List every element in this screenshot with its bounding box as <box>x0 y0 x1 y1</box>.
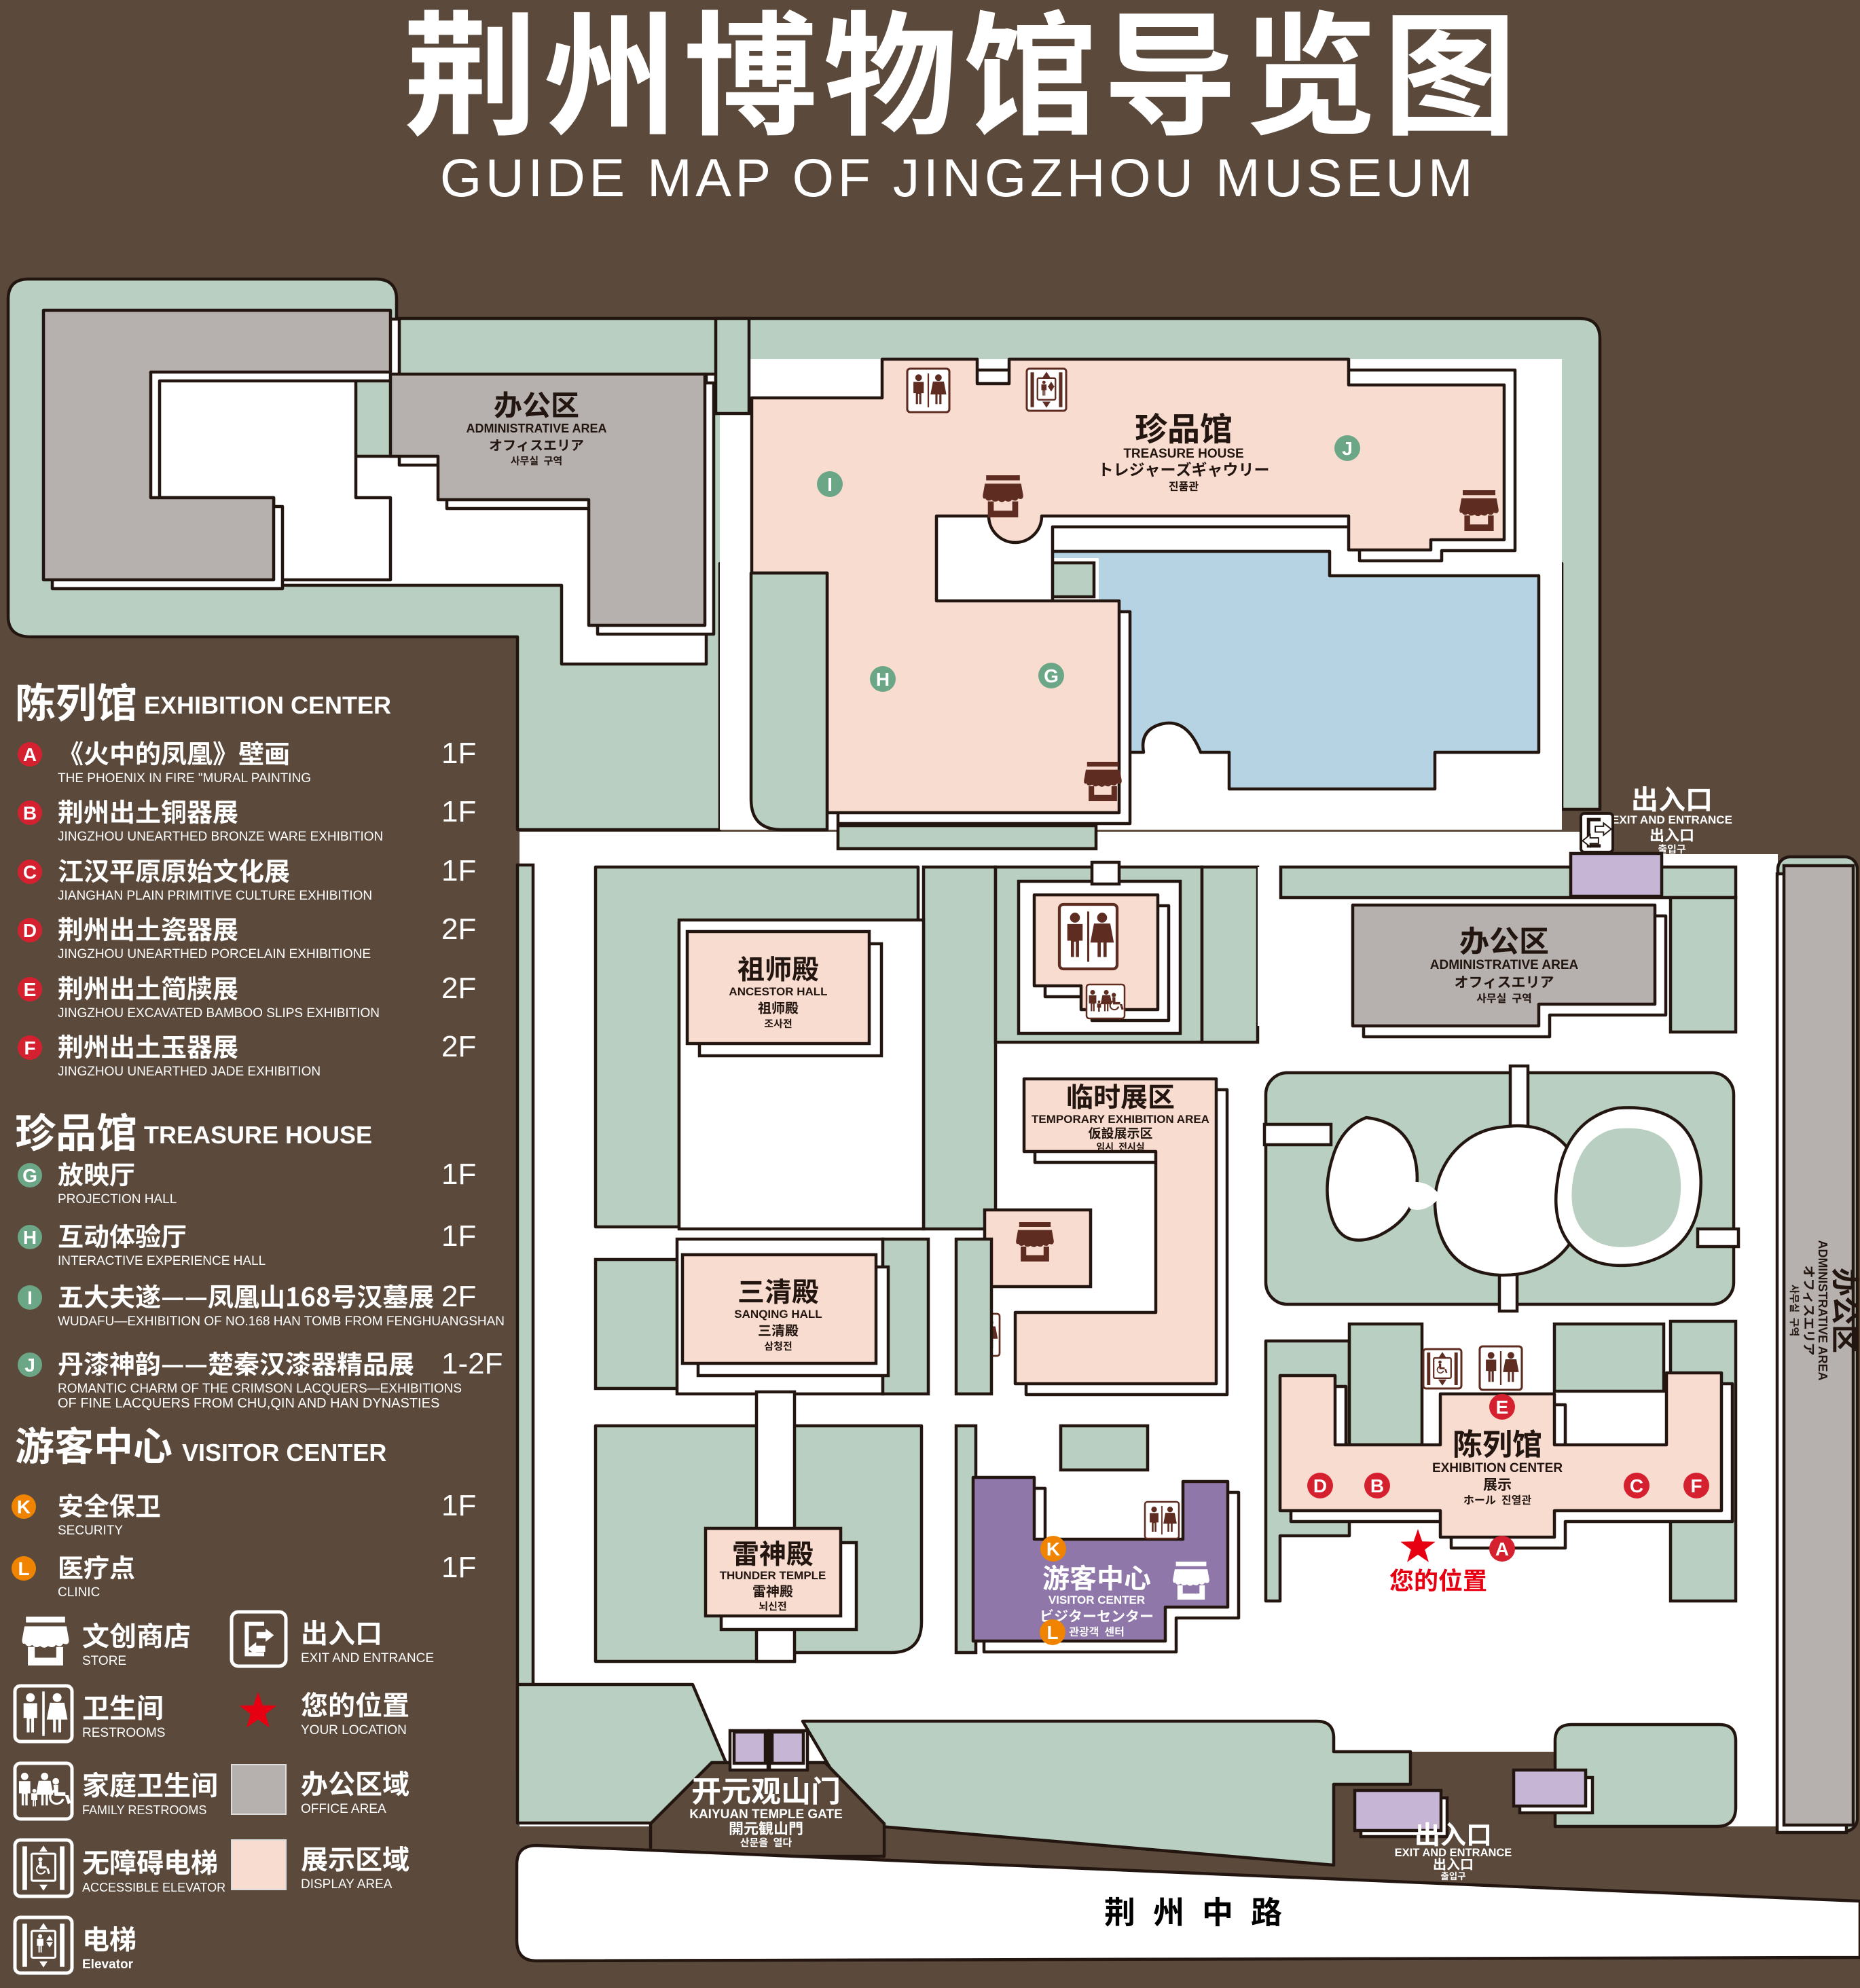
svg-text:JINGZHOU EXCAVATED BAMBOO SLIP: JINGZHOU EXCAVATED BAMBOO SLIPS EXHIBITI… <box>58 1006 380 1020</box>
svg-text:VISITOR CENTER: VISITOR CENTER <box>182 1439 386 1467</box>
svg-text:G: G <box>1044 665 1059 686</box>
svg-text:E: E <box>1496 1397 1509 1418</box>
svg-text:2F: 2F <box>441 913 476 946</box>
svg-text:1F: 1F <box>441 854 476 887</box>
svg-text:1F: 1F <box>441 1219 476 1253</box>
svg-text:OF FINE LACQUERS FROM CHU,QIN: OF FINE LACQUERS FROM CHU,QIN AND HAN DY… <box>58 1396 439 1411</box>
svg-text:ACCESSIBLE ELEVATOR: ACCESSIBLE ELEVATOR <box>82 1881 225 1894</box>
svg-text:WUDAFU—EXHIBITION OF NO.168 HA: WUDAFU—EXHIBITION OF NO.168 HAN TOMB FRO… <box>58 1314 505 1329</box>
svg-text:D: D <box>23 920 37 941</box>
svg-text:EXHIBITION CENTER: EXHIBITION CENTER <box>1432 1461 1563 1475</box>
svg-text:SECURITY: SECURITY <box>58 1524 123 1538</box>
svg-text:EXHIBITION CENTER: EXHIBITION CENTER <box>144 691 391 719</box>
svg-text:C: C <box>1630 1475 1643 1496</box>
svg-text:J: J <box>24 1355 35 1376</box>
svg-text:2F: 2F <box>441 1030 476 1063</box>
svg-text:VISITOR CENTER: VISITOR CENTER <box>1048 1594 1145 1606</box>
svg-text:G: G <box>22 1165 37 1186</box>
svg-text:RESTROOMS: RESTROOMS <box>82 1726 165 1740</box>
svg-text:K: K <box>17 1496 31 1517</box>
svg-text:THE PHOENIX IN FIRE "MURAL PAI: THE PHOENIX IN FIRE "MURAL PAINTING <box>58 771 311 786</box>
svg-text:GUIDE MAP OF JINGZHOU MUSEUM: GUIDE MAP OF JINGZHOU MUSEUM <box>440 147 1476 208</box>
svg-text:OFFICE AREA: OFFICE AREA <box>301 1802 386 1816</box>
svg-text:CLINIC: CLINIC <box>58 1585 100 1600</box>
svg-text:C: C <box>23 862 37 883</box>
svg-text:ADMINISTRATIVE AREA: ADMINISTRATIVE AREA <box>1430 958 1579 972</box>
svg-text:ROMANTIC CHARM OF THE CRIMSON: ROMANTIC CHARM OF THE CRIMSON LACQUERS—E… <box>58 1382 462 1396</box>
svg-text:JINGZHOU UNEARTHED BRONZE WARE: JINGZHOU UNEARTHED BRONZE WARE EXHIBITIO… <box>58 830 383 844</box>
svg-text:ANCESTOR HALL: ANCESTOR HALL <box>729 985 827 998</box>
svg-text:K: K <box>1046 1539 1060 1560</box>
svg-text:TREASURE HOUSE: TREASURE HOUSE <box>144 1121 372 1149</box>
svg-text:PROJECTION HALL: PROJECTION HALL <box>58 1192 177 1207</box>
svg-text:JIANGHAN PLAIN PRIMITIVE CULTU: JIANGHAN PLAIN PRIMITIVE CULTURE EXHIBIT… <box>58 889 372 903</box>
svg-text:A: A <box>23 744 37 765</box>
svg-text:KAIYUAN TEMPLE GATE: KAIYUAN TEMPLE GATE <box>689 1807 843 1822</box>
svg-text:F: F <box>24 1037 35 1059</box>
svg-text:ADMINISTRATIVE AREA: ADMINISTRATIVE AREA <box>467 422 607 435</box>
svg-text:TEMPORARY EXHIBITION AREA: TEMPORARY EXHIBITION AREA <box>1032 1113 1209 1126</box>
svg-text:EXIT AND ENTRANCE: EXIT AND ENTRANCE <box>301 1651 434 1665</box>
svg-text:SANQING HALL: SANQING HALL <box>734 1308 822 1321</box>
svg-text:L: L <box>1046 1622 1058 1643</box>
svg-text:I: I <box>827 474 833 495</box>
svg-text:JINGZHOU UNEARTHED JADE EXHIBI: JINGZHOU UNEARTHED JADE EXHIBITION <box>58 1065 321 1079</box>
svg-text:EXIT AND ENTRANCE: EXIT AND ENTRANCE <box>1395 1847 1512 1859</box>
svg-text:1F: 1F <box>441 1551 476 1584</box>
svg-text:J: J <box>1342 438 1353 459</box>
svg-text:THUNDER TEMPLE: THUNDER TEMPLE <box>720 1569 826 1582</box>
svg-text:L: L <box>18 1558 29 1579</box>
svg-text:H: H <box>876 669 890 690</box>
svg-text:STORE: STORE <box>82 1654 126 1668</box>
svg-text:1F: 1F <box>441 795 476 828</box>
svg-text:1F: 1F <box>441 1489 476 1522</box>
svg-text:2F: 2F <box>441 1280 476 1313</box>
svg-text:1-2F: 1-2F <box>441 1347 503 1380</box>
svg-text:B: B <box>1370 1475 1384 1496</box>
svg-text:DISPLAY AREA: DISPLAY AREA <box>301 1877 393 1892</box>
svg-text:TREASURE HOUSE: TREASURE HOUSE <box>1123 447 1243 461</box>
svg-text:E: E <box>24 979 37 1000</box>
svg-text:Elevator: Elevator <box>82 1957 134 1972</box>
svg-text:D: D <box>1313 1475 1327 1496</box>
svg-text:F: F <box>1690 1475 1702 1496</box>
svg-text:I: I <box>27 1287 33 1308</box>
svg-text:FAMILY RESTROOMS: FAMILY RESTROOMS <box>82 1803 206 1817</box>
svg-text:1F: 1F <box>441 1158 476 1191</box>
svg-text:INTERACTIVE EXPERIENCE HALL: INTERACTIVE EXPERIENCE HALL <box>58 1254 266 1268</box>
svg-text:A: A <box>1495 1539 1509 1560</box>
svg-text:JINGZHOU UNEARTHED PORCELAIN E: JINGZHOU UNEARTHED PORCELAIN EXHIBITIONE <box>58 947 371 961</box>
svg-text:H: H <box>23 1227 37 1248</box>
svg-text:YOUR LOCATION: YOUR LOCATION <box>301 1723 407 1737</box>
svg-text:B: B <box>23 803 37 824</box>
svg-text:2F: 2F <box>441 972 476 1005</box>
svg-text:EXIT AND ENTRANCE: EXIT AND ENTRANCE <box>1611 813 1732 826</box>
svg-text:1F: 1F <box>441 737 476 770</box>
svg-text:ADMINISTRATIVE AREA: ADMINISTRATIVE AREA <box>1816 1240 1829 1381</box>
